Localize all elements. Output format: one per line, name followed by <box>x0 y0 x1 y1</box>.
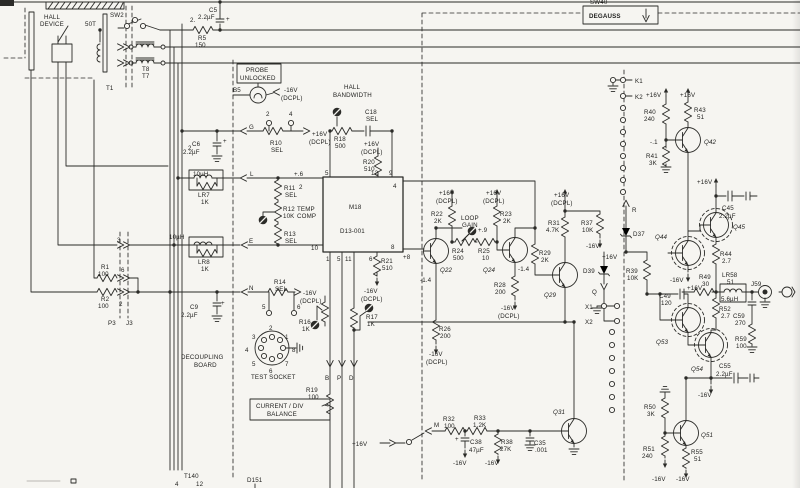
label-v-m1: -.1 <box>650 139 658 146</box>
label-term-b: B <box>325 375 329 382</box>
label-hall-device-1: HALL <box>44 14 60 21</box>
label-c49: C49 <box>659 293 671 300</box>
label-c6: C6 <box>192 141 201 148</box>
resistor-r24 <box>455 238 475 245</box>
label-r52-val: 2.7 <box>721 313 730 320</box>
label-lr58-uh: 5.6µH <box>721 296 738 303</box>
label-m18-p5b: 5 <box>337 256 341 263</box>
label-r17: R17 <box>366 314 378 321</box>
label-r28-val: 200 <box>495 289 506 296</box>
label-r26: R26 <box>439 326 451 333</box>
balance-leader <box>324 405 328 406</box>
label-q42: Q42 <box>704 139 717 146</box>
label-m18-p9: 9 <box>389 170 393 177</box>
label-term-e: E <box>249 238 253 245</box>
label-t7: T7 <box>142 73 150 80</box>
label-r38-val: 27K <box>500 446 512 453</box>
label-d151: D151 <box>247 477 263 484</box>
label-r29: R29 <box>539 250 551 257</box>
label-lr8-val: 1K <box>201 266 210 273</box>
coil-t1 <box>97 44 100 62</box>
label-c45: C45 <box>722 205 734 212</box>
label-v-p9: +.9 <box>478 227 488 234</box>
label-k1: K1 <box>635 78 643 85</box>
label-c9: C9 <box>190 304 199 311</box>
label-pj-6: 6 <box>121 267 125 274</box>
label-m16-r55: -16V <box>676 476 690 483</box>
label-r19: R19 <box>306 387 318 394</box>
label-r18: R18 <box>334 136 346 143</box>
label-r26-val: 200 <box>440 333 451 340</box>
label-d37: D37 <box>633 231 645 238</box>
label-m18-p6: 6 <box>369 256 373 263</box>
label-pin5: 5 <box>262 304 266 311</box>
label-c35: C35 <box>534 440 546 447</box>
transistor-q54 <box>699 333 724 358</box>
label-r39-val: 10K <box>627 275 639 282</box>
label-term-m: M <box>434 422 439 429</box>
resistor-r16 <box>321 302 328 322</box>
label-t140-12: 12 <box>196 481 204 488</box>
label-r16-val: 1K <box>302 326 311 333</box>
label-m16-r21-d: (DCPL) <box>361 296 383 303</box>
label-j59: J59 <box>751 281 762 288</box>
label-m18-part: D13-001 <box>340 228 365 235</box>
label-c5-val: 2.2µF <box>198 14 215 21</box>
transistor-q42 <box>676 128 701 153</box>
switch-sw2 <box>124 17 145 28</box>
label-r32: R32 <box>443 416 455 423</box>
label-r24-val: 500 <box>453 255 464 262</box>
label-q45: Q45 <box>733 224 746 231</box>
label-p16-q45: +16V <box>697 179 713 186</box>
label-pj-3: 3 <box>117 237 121 244</box>
label-r2: R2 <box>101 296 110 303</box>
label-r20: R20 <box>363 159 375 166</box>
resistor-r40 <box>662 104 669 124</box>
resistor-r37 <box>596 214 603 234</box>
label-r16: R16 <box>299 319 311 326</box>
label-r1-val: 100 <box>98 271 109 278</box>
resistor-r18 <box>332 127 352 134</box>
lamp-b5 <box>250 87 266 103</box>
label-sw2: SW2 <box>110 12 124 19</box>
label-t1: T1 <box>106 85 114 92</box>
label-lr7-val: 1K <box>201 199 210 206</box>
label-r29-val: 2K <box>541 257 550 264</box>
label-ts-1: 1 <box>285 334 289 341</box>
resistor-r17 <box>350 308 357 328</box>
label-r43: R43 <box>694 107 706 114</box>
label-t8: T8 <box>142 66 150 73</box>
label-ts-7: 7 <box>285 361 289 368</box>
label-k2: K2 <box>635 94 643 101</box>
label-c55-val: 2.2µF <box>716 371 733 378</box>
resistor-r2 <box>97 288 117 295</box>
label-x2: X2 <box>585 319 593 326</box>
label-p16-r23-d: (DCPL) <box>483 198 505 205</box>
resistor-r59 <box>748 324 755 344</box>
label-c6-val: 2.2µF <box>183 149 200 156</box>
label-q29: Q29 <box>544 292 557 299</box>
label-r33: R33 <box>474 415 486 422</box>
label-p16-r20-d: (DCPL) <box>361 149 383 156</box>
label-m16-r37: -16V <box>586 243 600 250</box>
label-c38-plus: + <box>455 436 459 443</box>
label-r22-val: 2K <box>434 218 443 225</box>
label-sw40: SW40 <box>590 0 608 6</box>
screw-r17 <box>365 304 374 313</box>
label-r51-val: 240 <box>642 453 653 460</box>
label-lr7-uh: 10µH <box>193 171 209 178</box>
label-p16-r40: +16V <box>646 92 662 99</box>
label-lr58-val: 51 <box>727 279 735 286</box>
label-r17-val: 1K <box>367 321 376 328</box>
label-q31: Q31 <box>553 409 565 416</box>
resistor-r12 <box>274 202 281 222</box>
label-q54: Q54 <box>691 366 704 373</box>
label-r41-val: 3K <box>649 160 658 167</box>
label-c5: C5 <box>209 7 218 14</box>
transistor-q22 <box>424 239 449 264</box>
label-r43-val: 51 <box>697 114 705 121</box>
label-unlocked: UNLOCKED <box>240 75 276 82</box>
label-b5: B5 <box>233 87 241 94</box>
resistor-r25 <box>475 238 495 245</box>
label-r1: R1 <box>101 264 110 271</box>
label-r5: R5 <box>198 35 207 42</box>
label-p16-r43: +16V <box>680 92 696 99</box>
label-ts-3: 3 <box>252 334 256 341</box>
label-r19-val: 100 <box>308 394 319 401</box>
label-loop: LOOP <box>461 215 479 222</box>
label-r21-val: 510 <box>382 265 393 272</box>
resistor-r51 <box>661 436 668 456</box>
label-c9-plus: + <box>221 300 225 307</box>
label-r18-val: 500 <box>335 143 346 150</box>
resistor-r13 <box>274 224 281 244</box>
label-ts-4: 4 <box>245 347 249 354</box>
label-ts-5: 5 <box>252 361 256 368</box>
label-c59: C59 <box>733 313 745 320</box>
coil-lr58 <box>724 289 742 292</box>
label-lr7: LR7 <box>198 192 210 199</box>
label-c18: C18 <box>365 109 377 116</box>
label-p16-r20: +16V <box>364 141 380 148</box>
label-r59-val: 100 <box>736 343 747 350</box>
resistor-r43 <box>684 102 691 122</box>
zener-d39 <box>599 266 610 276</box>
label-r2-val: 100 <box>98 303 109 310</box>
label-r22: R22 <box>431 211 443 218</box>
label-r12: R12 <box>283 206 295 213</box>
label-p16-r31-d: (DCPL) <box>551 200 573 207</box>
label-p16-r22: +16V <box>439 190 455 197</box>
label-r23: R23 <box>500 211 512 218</box>
label-probe: PROBE <box>246 67 268 74</box>
label-board: BOARD <box>194 362 217 369</box>
label-m18-v8: +8 <box>403 254 411 261</box>
resistor-r22 <box>448 206 455 226</box>
lr8-box <box>189 237 223 257</box>
scan-edge-shade <box>792 0 800 488</box>
label-m16-c38: -16V <box>453 460 467 467</box>
label-c9-val: 2.2µF <box>181 312 198 319</box>
label-r23-val: 2K <box>503 218 512 225</box>
label-q44: Q44 <box>655 234 668 241</box>
label-p16-r23: +16V <box>486 190 502 197</box>
transistor-q44 <box>676 241 701 266</box>
label-t140: T140 <box>184 473 199 480</box>
label-r25-val: 10 <box>482 255 490 262</box>
label-c35-val: .001 <box>535 447 548 454</box>
label-m18-p2: 2 <box>299 184 303 191</box>
label-p16-r10: +16V <box>312 131 328 138</box>
label-p16-m: +16V <box>352 441 368 448</box>
label-c45-val: 2.2µF <box>719 213 736 220</box>
resistor-r31 <box>561 217 568 237</box>
label-term-g: G <box>249 124 254 131</box>
label-hall-device-2: DEVICE <box>40 21 64 28</box>
label-r13-val: SEL <box>285 238 298 245</box>
label-c38-val: 47µF <box>469 447 484 454</box>
label-r40-val: 240 <box>644 116 655 123</box>
label-p16-c49: +16V <box>687 285 703 292</box>
label-m16-r38: -16V <box>485 460 499 467</box>
inductors <box>97 44 742 292</box>
label-r28: R28 <box>494 282 506 289</box>
label-m16-r51: -16V <box>652 476 666 483</box>
label-r32-val: 100 <box>444 423 455 430</box>
label-r13: R13 <box>284 231 296 238</box>
label-neg16-lamp-d: (DCPL) <box>281 95 303 102</box>
label-m18-p8: 8 <box>391 244 395 251</box>
resistor-r28 <box>511 276 518 296</box>
label-r11-val: SEL <box>285 192 298 199</box>
label-r44-val: 2.7 <box>722 258 731 265</box>
label-balance: BALANCE <box>267 411 297 418</box>
label-j3: J3 <box>126 320 133 327</box>
label-p16-r10-d: (DCPL) <box>309 139 331 146</box>
label-r41: R41 <box>646 153 658 160</box>
label-r31-val: 4.7K <box>546 227 560 234</box>
resistor-r41 <box>662 146 669 166</box>
label-r33-val: 1.2K <box>473 422 487 429</box>
label-r39: R39 <box>626 268 638 275</box>
label-v14b: -1.4 <box>518 266 530 273</box>
label-r37-val: 10K <box>582 227 594 234</box>
label-r59: R59 <box>735 336 747 343</box>
label-neg16-lamp: -16V <box>284 87 298 94</box>
label-c55: C55 <box>719 363 731 370</box>
label-c6-plus: + <box>223 138 227 145</box>
label-lr58: LR58 <box>722 272 738 279</box>
label-m18-p1: 1 <box>326 256 330 263</box>
label-m18-v6: +.6 <box>294 171 304 178</box>
label-term-d: D <box>349 375 354 382</box>
label-r12-b: TEMP <box>297 206 315 213</box>
label-r12-c: COMP <box>297 213 316 220</box>
label-lr8: LR8 <box>198 259 210 266</box>
label-pin6: 6 <box>297 304 301 311</box>
label-c18-val: SEL <box>366 116 379 123</box>
label-m16-r28: -16V <box>501 305 515 312</box>
label-m16-r26-d: (DCPL) <box>426 359 448 366</box>
label-r11: R11 <box>284 185 296 192</box>
resistor-r11 <box>274 180 281 200</box>
label-r10-val: SEL <box>271 147 284 154</box>
label-r12-val: 10K <box>283 213 295 220</box>
label-m18-p12: 12 <box>371 170 379 177</box>
label-r21: R21 <box>381 258 393 265</box>
screw-r18 <box>333 108 342 117</box>
label-pj-2: 2 <box>119 301 123 308</box>
label-c5-plus: + <box>226 16 230 23</box>
label-r50: R50 <box>644 404 656 411</box>
label-v14a: -1.4 <box>420 277 432 284</box>
label-term-p: P <box>337 375 341 382</box>
label-c49-val: 120 <box>661 300 672 307</box>
schematic-page: HALLDEVICE50TSW2T1T8T72.2.C52.2µF+R5150P… <box>0 0 800 488</box>
label-r50-val: 3K <box>647 411 656 418</box>
label-r31: R31 <box>548 220 560 227</box>
label-r14: R14 <box>274 279 286 286</box>
label-r55-val: 51 <box>694 456 702 463</box>
label-r44: R44 <box>720 251 732 258</box>
label-r10: R10 <box>270 140 282 147</box>
screw-r16 <box>311 321 320 330</box>
label-r37: R37 <box>581 220 593 227</box>
label-gain: GAIN <box>462 222 478 229</box>
label-m16-r21: -16V <box>364 288 378 295</box>
label-pin2: 2 <box>266 111 270 118</box>
label-m16-c55: -16V <box>698 392 712 399</box>
resistor-r55 <box>682 448 689 468</box>
label-p3: P3 <box>108 320 116 327</box>
transistor-q51 <box>674 421 699 446</box>
label-q53: Q53 <box>656 339 669 346</box>
label-r24: R24 <box>452 248 464 255</box>
resistor-lr7 <box>197 182 217 189</box>
resistor-lr8 <box>197 249 217 256</box>
label-m16-r28-d: (DCPL) <box>498 313 520 320</box>
label-lr8-uh: 10µH <box>169 234 185 241</box>
scan-artifact-mark <box>71 479 76 483</box>
label-m18-p11: 11 <box>345 256 352 263</box>
label-degauss: DEGAUSS <box>589 13 621 20</box>
label-r49-val: 30 <box>702 281 710 288</box>
label-current-div: CURRENT / DIV <box>256 403 304 410</box>
transistor-q31 <box>562 419 587 444</box>
zener-d37 <box>621 228 632 238</box>
resistor-r44 <box>712 244 719 264</box>
label-p16-r22-d: (DCPL) <box>436 198 458 205</box>
label-q51: Q51 <box>701 432 713 439</box>
label-ts-2: 2 <box>269 325 273 332</box>
schematic-canvas: HALLDEVICE50TSW2T1T8T72.2.C52.2µF+R5150P… <box>0 0 800 488</box>
label-x1: X1 <box>585 304 593 311</box>
label-m18-p4: 4 <box>393 183 397 190</box>
resistor-r39 <box>643 260 650 280</box>
label-pin4: 4 <box>289 111 293 118</box>
label-m18-p10: 10 <box>311 245 319 252</box>
label-r40: R40 <box>644 109 656 116</box>
label-m16-q44: -16V <box>670 277 684 284</box>
m18-box <box>323 177 403 252</box>
resistor-r50 <box>661 398 668 418</box>
transistor-q29 <box>553 263 578 288</box>
label-winding-50t: 50T <box>85 21 96 28</box>
label-d39: D39 <box>583 268 595 275</box>
label-p16-d37: +16V <box>602 254 618 261</box>
label-ts-8: 8 <box>292 347 296 354</box>
screw-r12 <box>259 216 268 225</box>
label-term-q: Q <box>592 289 597 296</box>
labels-layer: HALLDEVICE50TSW2T1T8T72.2.C52.2µF+R5150P… <box>40 0 762 488</box>
label-m16-r14-d: (DCPL) <box>300 298 322 305</box>
label-decoupling: DECOUPLING <box>181 354 223 361</box>
label-test-socket: TEST SOCKET <box>251 374 296 381</box>
label-m16-r14: -16V <box>303 290 317 297</box>
label-q22: Q22 <box>440 267 453 274</box>
label-m18: M18 <box>349 204 362 211</box>
label-m16-r26: -16V <box>429 351 443 358</box>
label-r55: R55 <box>691 449 703 456</box>
hall-device-box <box>52 44 72 62</box>
label-term-r: R <box>632 207 637 214</box>
label-r49: R49 <box>699 274 711 281</box>
wires <box>0 2 800 488</box>
resistor-r10 <box>263 127 283 134</box>
label-c38: C38 <box>470 439 482 446</box>
label-c59-val: 270 <box>735 320 746 327</box>
j59-connector <box>759 286 796 299</box>
junction-dots <box>98 0 753 434</box>
label-wire-2a: 2. <box>190 17 196 24</box>
label-r5-val: 150 <box>195 42 206 49</box>
hall-device-leader <box>58 26 68 42</box>
label-r14-val: SEL <box>275 286 288 293</box>
label-r38: R38 <box>501 439 513 446</box>
label-r25: R25 <box>478 248 490 255</box>
label-q24: Q24 <box>483 267 496 274</box>
transistor-q24 <box>503 238 528 263</box>
label-term-n: N <box>249 285 254 292</box>
label-hall-bw-1: HALL <box>344 84 360 91</box>
label-m18-p5: 5 <box>325 170 329 177</box>
resistor-r29 <box>531 244 538 264</box>
label-term-l: L <box>250 171 254 178</box>
label-t140-4: 4 <box>175 481 179 488</box>
transistor-q53 <box>676 308 701 333</box>
resistor-r5 <box>193 26 213 33</box>
label-r52: R52 <box>719 306 731 313</box>
label-hall-bw-2: BANDWIDTH <box>333 92 372 99</box>
label-r51: R51 <box>643 446 655 453</box>
label-p16-r31: +16V <box>554 192 570 199</box>
